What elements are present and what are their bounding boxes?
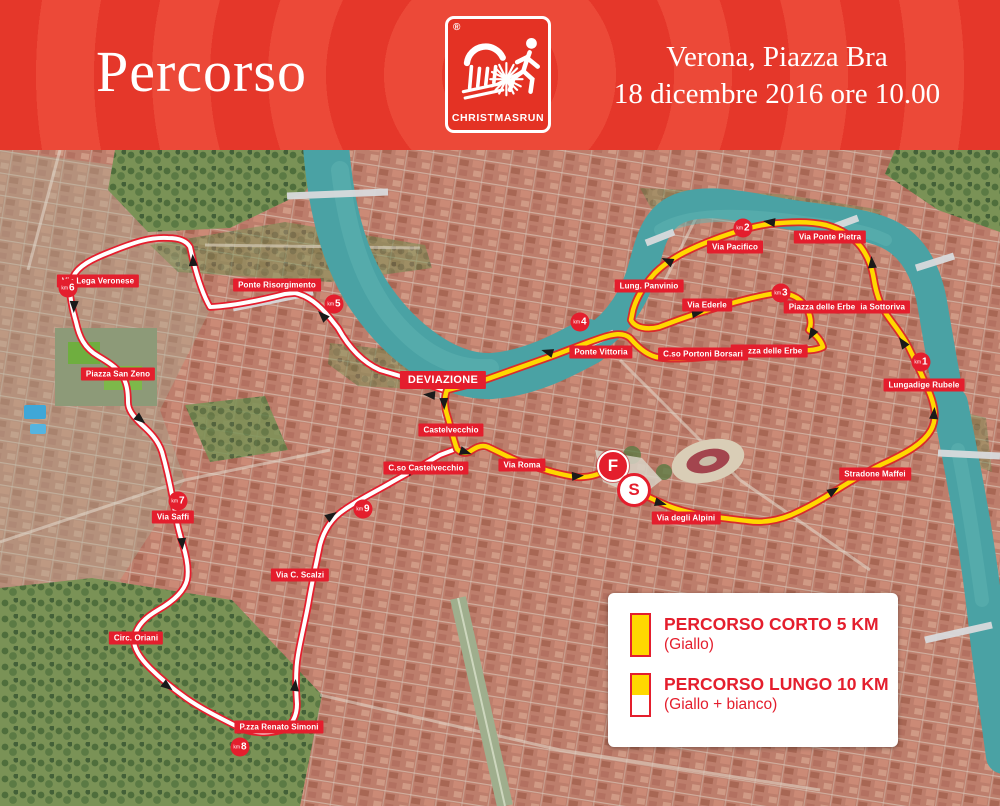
km-marker-2: km2 bbox=[734, 219, 753, 238]
swimming-pool bbox=[24, 405, 46, 419]
street-label: Castelvecchio bbox=[418, 424, 483, 437]
event-info: Verona, Piazza Bra 18 dicembre 2016 ore … bbox=[612, 40, 942, 114]
legend-item-long-course: PERCORSO LUNGO 10 KM (Giallo + bianco) bbox=[630, 673, 898, 717]
logo-brand-text: CHRISTMASRUN bbox=[448, 112, 548, 124]
street-label: Via degli Alpini bbox=[652, 512, 721, 525]
street-label: Via Pacifico bbox=[707, 241, 763, 254]
start-marker: S bbox=[617, 473, 651, 507]
street-label: Ponte Vittoria bbox=[569, 346, 632, 359]
event-location: Verona, Piazza Bra bbox=[612, 40, 942, 74]
legend-title: PERCORSO LUNGO 10 KM bbox=[664, 673, 889, 695]
street-label: Via Saffi bbox=[152, 511, 194, 524]
legend-swatch-yellow-white bbox=[630, 673, 651, 717]
event-datetime: 18 dicembre 2016 ore 10.00 bbox=[612, 74, 942, 114]
km-marker-1: km1 bbox=[912, 353, 931, 372]
street-label: Via Ponte Pietra bbox=[794, 231, 866, 244]
street-label: C.so Portoni Borsari bbox=[658, 348, 748, 361]
legend-subtitle: (Giallo) bbox=[664, 635, 879, 655]
street-label: Circ. Oriani bbox=[109, 632, 163, 645]
street-label: Piazza delle Erbe bbox=[784, 301, 861, 314]
street-label: Lungadige Rubele bbox=[884, 379, 965, 392]
christmasrun-logo: ® bbox=[445, 16, 551, 133]
street-label: P.zza Renato Simoni bbox=[234, 721, 323, 734]
km-marker-4: km4 bbox=[571, 313, 590, 332]
street-label: Via Ederle bbox=[682, 299, 732, 312]
km-marker-5: km5 bbox=[325, 295, 344, 314]
legend-item-short-course: PERCORSO CORTO 5 KM (Giallo) bbox=[630, 613, 898, 657]
km-marker-8: km8 bbox=[231, 738, 250, 757]
street-label: Via Roma bbox=[498, 459, 545, 472]
street-label: Lung. Panvinio bbox=[615, 280, 684, 293]
street-label: Ponte Risorgimento bbox=[233, 279, 321, 292]
street-label: C.so Castelvecchio bbox=[383, 462, 468, 475]
km-marker-7: km7 bbox=[169, 492, 188, 511]
legend-subtitle: (Giallo + bianco) bbox=[664, 695, 889, 715]
logo-graphic-icon bbox=[456, 29, 546, 115]
km-marker-9: km9 bbox=[354, 500, 373, 519]
street-label: Piazza San Zeno bbox=[81, 368, 155, 381]
km-marker-3: km3 bbox=[772, 284, 791, 303]
street-label: Stradone Maffei bbox=[839, 468, 911, 481]
legend: PERCORSO CORTO 5 KM (Giallo) PERCORSO LU… bbox=[608, 593, 898, 747]
swimming-pool bbox=[30, 424, 46, 434]
course-map: Via Lega VeronesePonte RisorgimentoPiazz… bbox=[0, 150, 1000, 806]
header-banner: Percorso ® bbox=[0, 0, 1000, 150]
km-marker-6: km6 bbox=[59, 279, 78, 298]
legend-swatch-yellow bbox=[630, 613, 651, 657]
legend-title: PERCORSO CORTO 5 KM bbox=[664, 613, 879, 635]
page-title: Percorso bbox=[96, 38, 307, 105]
deviation-label: DEVIAZIONE bbox=[400, 371, 486, 389]
route-poster: Percorso ® bbox=[0, 0, 1000, 806]
street-label: Via C. Scalzi bbox=[271, 569, 329, 582]
